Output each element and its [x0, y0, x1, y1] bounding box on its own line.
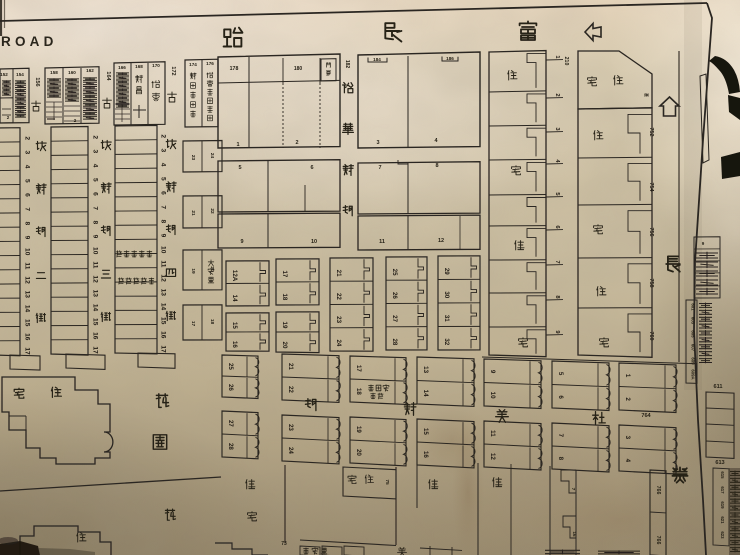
- svg-text:15: 15: [422, 428, 429, 435]
- svg-text:3: 3: [24, 151, 31, 155]
- svg-text:2: 2: [624, 397, 631, 401]
- svg-text:13: 13: [160, 289, 167, 297]
- svg-text:13: 13: [92, 290, 99, 298]
- svg-text:5: 5: [238, 165, 241, 171]
- svg-text:756: 756: [648, 228, 654, 237]
- svg-text:3: 3: [92, 150, 99, 154]
- svg-text:14: 14: [24, 305, 31, 313]
- svg-text:6: 6: [160, 191, 167, 195]
- svg-text:182: 182: [344, 60, 350, 69]
- svg-text:22: 22: [209, 208, 215, 214]
- svg-text:154: 154: [16, 72, 24, 77]
- svg-text:186: 186: [446, 56, 454, 61]
- svg-text:6: 6: [92, 192, 99, 196]
- svg-text:23: 23: [335, 316, 342, 323]
- svg-text:605: 605: [691, 330, 696, 338]
- svg-text:2: 2: [24, 136, 31, 140]
- svg-text:10: 10: [160, 246, 167, 254]
- svg-text:21: 21: [335, 270, 342, 277]
- svg-text:17: 17: [92, 346, 99, 354]
- svg-text:5: 5: [557, 372, 564, 376]
- svg-text:甚: 甚: [644, 93, 650, 97]
- svg-text:2: 2: [160, 134, 167, 138]
- svg-text:17: 17: [24, 347, 31, 355]
- svg-text:10: 10: [92, 247, 99, 255]
- svg-text:184: 184: [373, 57, 381, 62]
- svg-text:619: 619: [720, 501, 725, 509]
- svg-text:17: 17: [355, 365, 362, 372]
- svg-text:3: 3: [376, 140, 379, 146]
- svg-text:27: 27: [391, 315, 398, 322]
- svg-text:21: 21: [287, 363, 294, 370]
- svg-text:9: 9: [489, 370, 496, 374]
- svg-text:4: 4: [24, 165, 31, 169]
- svg-text:28: 28: [227, 443, 234, 450]
- svg-text:210: 210: [563, 57, 569, 66]
- svg-text:752: 752: [648, 128, 654, 137]
- svg-text:164: 164: [105, 71, 111, 81]
- svg-text:23: 23: [190, 155, 196, 161]
- svg-text:9: 9: [92, 235, 99, 239]
- svg-text:607: 607: [691, 344, 696, 352]
- svg-text:2: 2: [554, 93, 560, 96]
- svg-text:603: 603: [691, 317, 696, 325]
- svg-text:2: 2: [295, 140, 298, 146]
- svg-text:75: 75: [384, 479, 390, 485]
- svg-text:11: 11: [379, 239, 385, 245]
- svg-text:6: 6: [24, 193, 31, 197]
- svg-text:601: 601: [691, 303, 696, 311]
- svg-text:17: 17: [190, 321, 196, 327]
- svg-text:11: 11: [160, 260, 167, 267]
- svg-text:14: 14: [231, 295, 238, 302]
- svg-text:31: 31: [443, 315, 450, 322]
- svg-text:24: 24: [335, 339, 342, 346]
- svg-text:12: 12: [24, 276, 31, 284]
- svg-text:7: 7: [554, 260, 560, 263]
- svg-text:609: 609: [691, 357, 696, 365]
- svg-text:15: 15: [160, 317, 167, 325]
- svg-text:19: 19: [281, 322, 288, 329]
- svg-text:14: 14: [422, 390, 429, 397]
- svg-text:10: 10: [24, 248, 31, 256]
- svg-text:15: 15: [231, 322, 238, 329]
- svg-text:11: 11: [489, 430, 496, 437]
- svg-text:10: 10: [489, 392, 496, 399]
- svg-text:9: 9: [24, 236, 31, 240]
- svg-text:11: 11: [92, 261, 99, 268]
- svg-text:20: 20: [355, 449, 362, 456]
- svg-text:28: 28: [391, 338, 398, 345]
- svg-text:15: 15: [24, 319, 31, 327]
- svg-text:25: 25: [227, 363, 234, 370]
- svg-text:12A: 12A: [231, 270, 238, 282]
- svg-text:623: 623: [720, 531, 725, 539]
- svg-text:24: 24: [287, 447, 294, 454]
- svg-text:8: 8: [24, 221, 31, 225]
- svg-text:13: 13: [422, 366, 429, 373]
- svg-text:764: 764: [641, 413, 651, 419]
- svg-text:14: 14: [92, 304, 99, 312]
- svg-text:3: 3: [160, 149, 167, 153]
- svg-text:9: 9: [160, 234, 167, 238]
- svg-text:162: 162: [86, 68, 94, 73]
- svg-text:3: 3: [624, 436, 631, 440]
- svg-text:25: 25: [391, 269, 398, 276]
- svg-text:4: 4: [624, 459, 631, 463]
- svg-text:166: 166: [118, 65, 126, 70]
- svg-text:6: 6: [310, 165, 313, 171]
- svg-text:11: 11: [24, 262, 31, 269]
- svg-text:16: 16: [92, 332, 99, 340]
- svg-text:19: 19: [190, 268, 196, 274]
- svg-text:12: 12: [489, 453, 496, 460]
- svg-text:16: 16: [572, 531, 577, 537]
- svg-text:7: 7: [570, 488, 576, 491]
- svg-text:760: 760: [648, 332, 654, 341]
- svg-text:15: 15: [92, 318, 99, 326]
- svg-text:617: 617: [720, 486, 725, 494]
- svg-text:615: 615: [720, 471, 725, 479]
- svg-text:23: 23: [287, 424, 294, 431]
- svg-text:172: 172: [170, 66, 176, 75]
- svg-text:16: 16: [24, 333, 31, 341]
- svg-text:26: 26: [391, 292, 398, 299]
- svg-text:10: 10: [311, 239, 317, 245]
- svg-text:4: 4: [92, 164, 99, 168]
- svg-text:27: 27: [227, 420, 234, 427]
- svg-text:7: 7: [160, 205, 167, 209]
- svg-text:18: 18: [281, 293, 288, 300]
- svg-text:7: 7: [557, 434, 564, 438]
- svg-text:1: 1: [624, 374, 631, 378]
- svg-text:32: 32: [443, 338, 450, 345]
- svg-text:758: 758: [648, 279, 654, 288]
- svg-text:16: 16: [231, 341, 238, 348]
- svg-text:12: 12: [160, 274, 167, 282]
- svg-text:29: 29: [443, 268, 450, 275]
- svg-text:766: 766: [655, 486, 661, 495]
- svg-text:158: 158: [50, 70, 58, 75]
- svg-text:621: 621: [720, 516, 725, 524]
- svg-text:30: 30: [443, 291, 450, 298]
- svg-text:19: 19: [355, 426, 362, 433]
- svg-text:14: 14: [160, 303, 167, 311]
- svg-text:170: 170: [152, 63, 160, 68]
- svg-text:24: 24: [209, 153, 215, 159]
- svg-text:178: 178: [230, 66, 239, 72]
- svg-text:2: 2: [92, 135, 99, 139]
- svg-text:7: 7: [378, 165, 381, 171]
- svg-text:26: 26: [227, 384, 234, 391]
- svg-text:17: 17: [160, 345, 167, 353]
- svg-text:ROAD: ROAD: [1, 34, 58, 49]
- svg-text:1: 1: [236, 142, 239, 148]
- svg-text:160: 160: [68, 70, 76, 75]
- svg-text:4: 4: [160, 163, 167, 167]
- svg-text:9: 9: [240, 239, 243, 245]
- svg-text:611: 611: [713, 384, 722, 390]
- svg-text:5: 5: [160, 177, 167, 181]
- svg-text:18: 18: [209, 319, 215, 325]
- svg-text:20: 20: [281, 342, 288, 349]
- svg-text:7: 7: [24, 207, 31, 211]
- svg-text:22: 22: [335, 293, 342, 300]
- svg-text:176: 176: [206, 61, 214, 66]
- svg-text:609A: 609A: [691, 369, 696, 379]
- svg-text:73: 73: [281, 541, 287, 547]
- svg-text:8: 8: [160, 219, 167, 223]
- svg-text:12: 12: [92, 275, 99, 283]
- svg-text:12: 12: [438, 238, 444, 244]
- svg-text:18: 18: [355, 388, 362, 395]
- svg-text:5: 5: [92, 178, 99, 182]
- svg-text:174: 174: [189, 62, 197, 67]
- svg-text:7: 7: [92, 206, 99, 210]
- svg-text:13: 13: [24, 291, 31, 299]
- svg-text:8: 8: [435, 163, 438, 169]
- svg-text:168: 168: [135, 64, 143, 69]
- svg-text:766: 766: [655, 536, 661, 545]
- svg-text:5: 5: [24, 179, 31, 183]
- svg-text:152: 152: [0, 72, 8, 77]
- svg-text:22: 22: [287, 386, 294, 393]
- svg-text:156: 156: [34, 77, 40, 86]
- svg-text:16: 16: [160, 331, 167, 339]
- svg-text:180: 180: [294, 66, 303, 72]
- svg-text:613: 613: [715, 460, 724, 466]
- svg-text:17: 17: [281, 270, 288, 277]
- svg-text:6: 6: [557, 395, 564, 399]
- svg-text:8: 8: [557, 457, 564, 461]
- svg-text:754: 754: [648, 183, 654, 192]
- svg-text:16: 16: [422, 451, 429, 458]
- svg-text:8: 8: [92, 220, 99, 224]
- svg-text:21: 21: [190, 210, 196, 216]
